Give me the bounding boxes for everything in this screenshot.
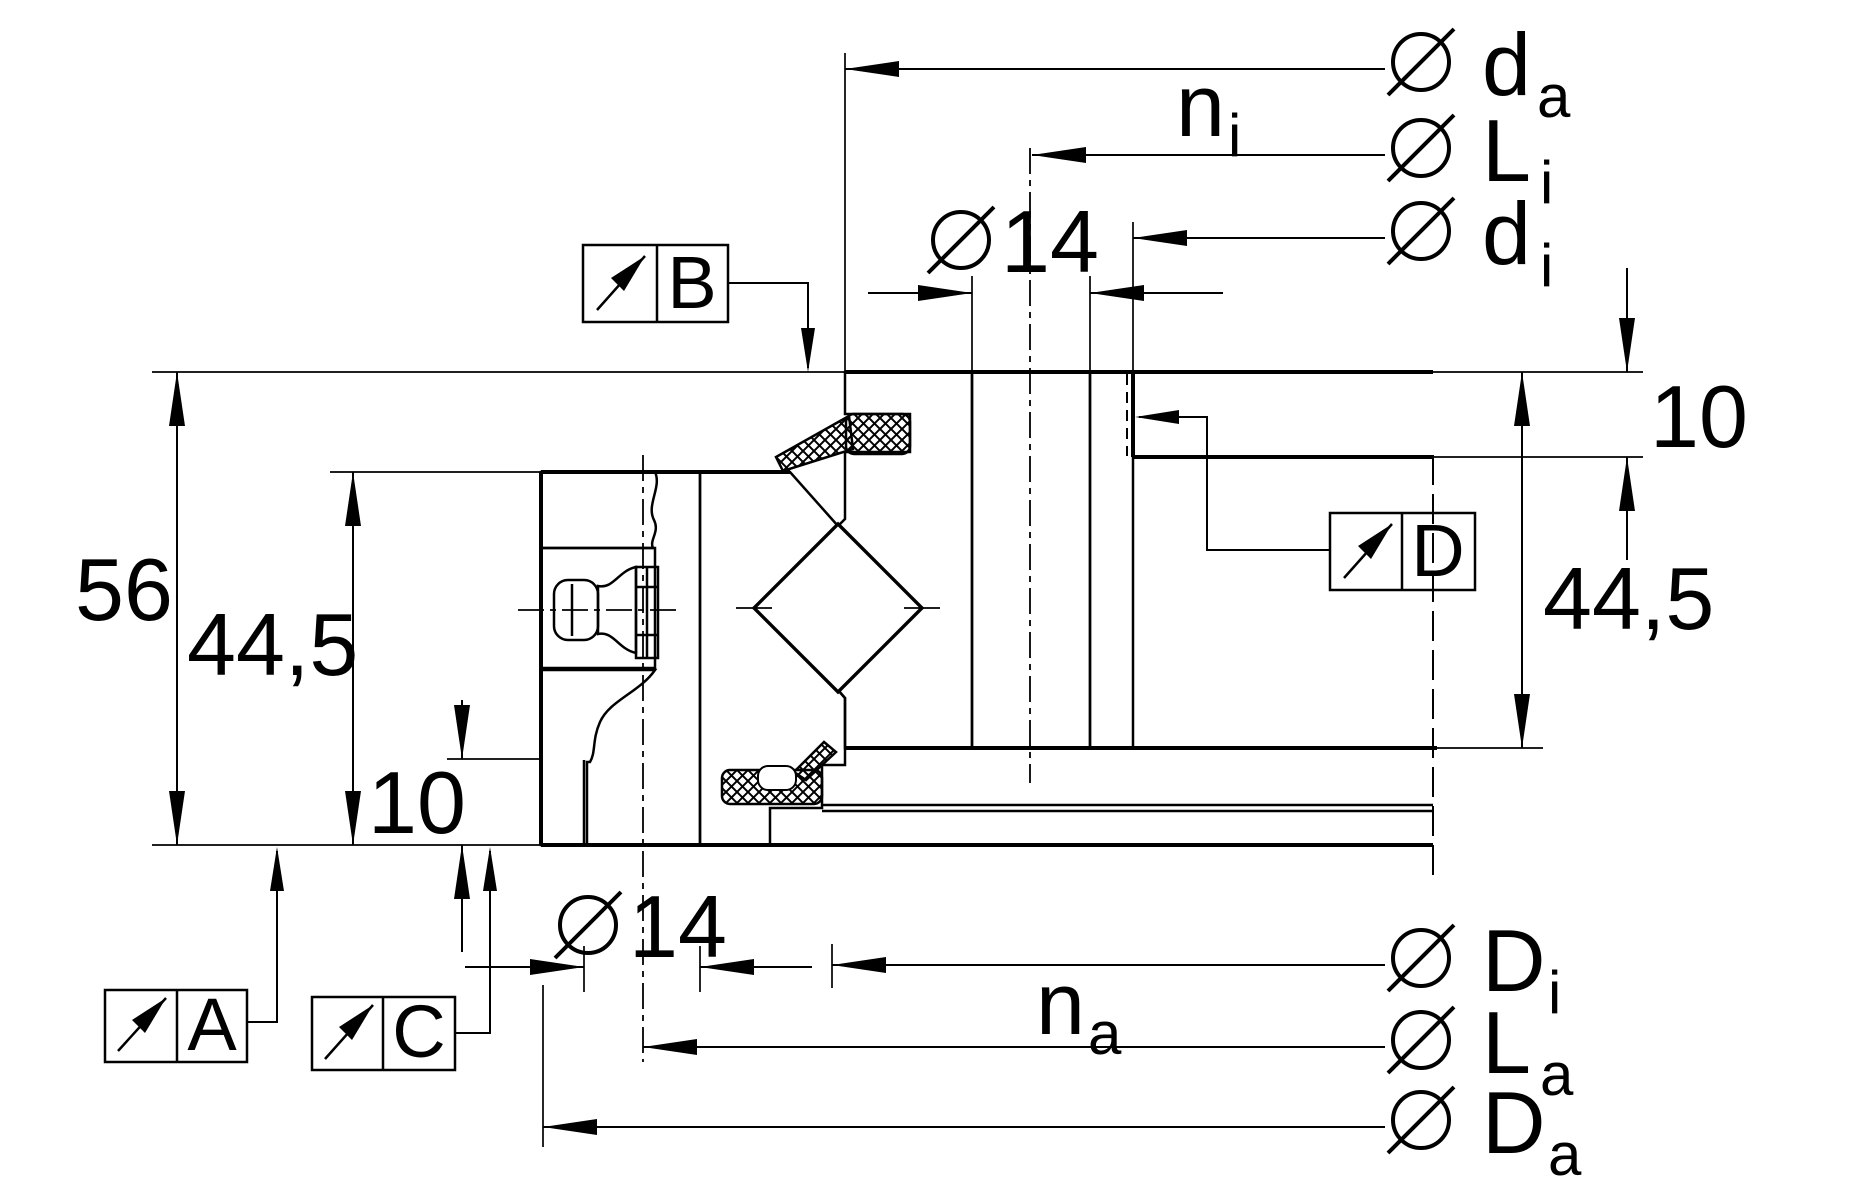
svg-text:i: i — [1228, 102, 1241, 169]
svg-text:d: d — [1482, 15, 1531, 114]
svg-text:i: i — [1540, 149, 1553, 216]
svg-text:n: n — [1036, 954, 1085, 1053]
datum-a-label: A — [187, 983, 237, 1066]
dim-recess-left: 10 — [368, 753, 466, 852]
svg-text:n: n — [1176, 56, 1225, 155]
dim-outer-ring-height: 44,5 — [1543, 549, 1714, 648]
svg-text:d: d — [1482, 184, 1531, 283]
svg-text:14: 14 — [629, 877, 727, 976]
dim-recess-right: 10 — [1650, 367, 1748, 466]
dim-inner-ring-height: 44,5 — [187, 595, 358, 694]
svg-text:i: i — [1548, 959, 1561, 1026]
svg-text:a: a — [1537, 63, 1571, 130]
datum-c-label: C — [392, 990, 445, 1073]
technical-drawing-page: 56 44,5 10 10 44,5 14 14 n i n a — [0, 0, 1855, 1200]
svg-text:i: i — [1540, 232, 1553, 299]
svg-text:a: a — [1088, 1000, 1122, 1067]
datum-b-label: B — [667, 241, 716, 324]
seal-lip-notch — [758, 766, 796, 790]
svg-text:a: a — [1548, 1121, 1582, 1188]
svg-text:D: D — [1482, 1073, 1546, 1172]
dim-total-height: 56 — [75, 540, 173, 639]
svg-text:14: 14 — [1001, 192, 1099, 291]
bearing-section-drawing: 56 44,5 10 10 44,5 14 14 n i n a — [0, 0, 1855, 1200]
datum-d-label: D — [1411, 509, 1464, 592]
